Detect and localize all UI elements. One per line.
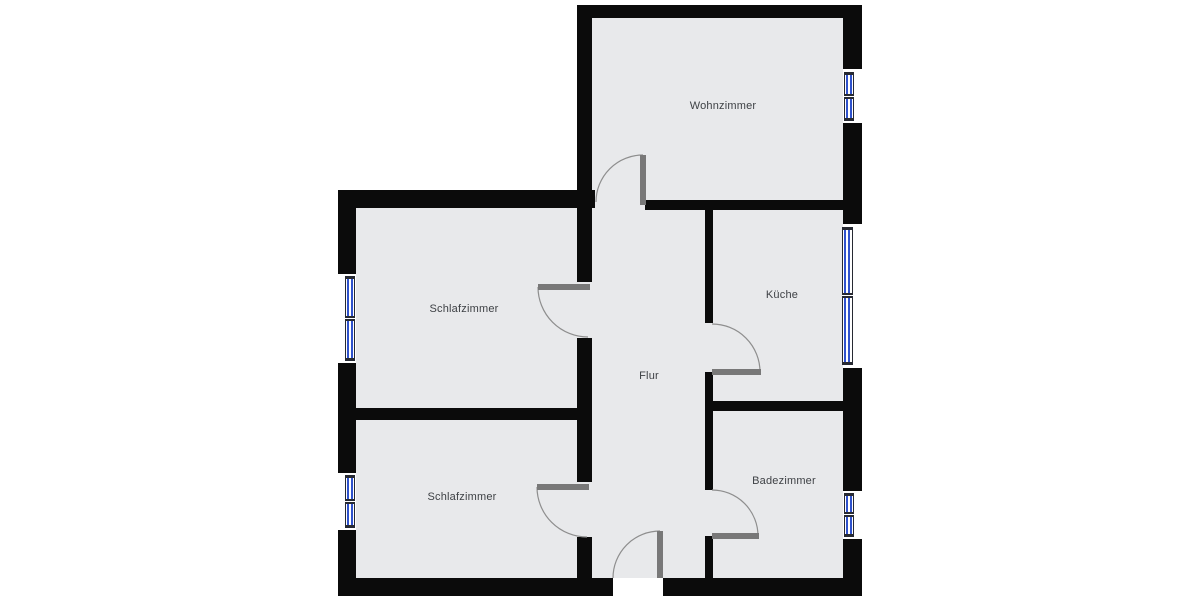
wall-outer-top: [577, 5, 862, 18]
badezimmer-window: [844, 493, 854, 537]
window-sash: [345, 316, 355, 321]
wall-outer-bottom-east: [663, 578, 862, 596]
room-label-schlafzimmer-2: Schlafzimmer: [427, 491, 496, 503]
wall-bedroom-divider: [338, 408, 592, 420]
window-end-cap: [346, 525, 354, 527]
window-end-cap: [845, 534, 853, 536]
kueche-door-panel: [712, 369, 761, 375]
window-end-cap: [843, 362, 852, 364]
schlafzimmer-2-door-panel: [537, 484, 589, 490]
wall-wohnzimmer-kueche-divider: [645, 200, 845, 210]
room-label-schlafzimmer-1: Schlafzimmer: [429, 303, 498, 315]
schlafzimmer-1-window: [345, 276, 355, 361]
wall-flur-bedroom-lower: [577, 537, 592, 578]
wall-left-block-top: [338, 190, 595, 208]
floor-plan: WohnzimmerSchlafzimmerKücheFlurSchlafzim…: [0, 0, 1200, 600]
wall-kueche-bad-divider: [713, 401, 845, 411]
room-label-badezimmer: Badezimmer: [752, 475, 816, 487]
kueche-window: [842, 227, 853, 365]
window-sash: [844, 94, 854, 99]
window-sash: [842, 293, 853, 298]
entrance-door-panel: [657, 531, 663, 578]
wall-flur-bad-lower: [705, 536, 713, 578]
schlafzimmer-2-window: [345, 475, 355, 528]
window-sash: [844, 512, 854, 517]
window-end-cap: [845, 118, 853, 120]
room-label-wohnzimmer: Wohnzimmer: [690, 100, 757, 112]
wall-outer-left: [338, 190, 356, 596]
wall-outer-bottom-west: [338, 578, 613, 596]
apartment-floor-main: [338, 190, 862, 578]
window-end-cap: [845, 73, 853, 75]
window-end-cap: [346, 277, 354, 279]
badezimmer-door-panel: [712, 533, 759, 539]
window-sash: [345, 499, 355, 504]
window-end-cap: [346, 476, 354, 478]
room-label-kueche: Küche: [766, 289, 798, 301]
wall-flur-kueche-upper: [705, 200, 713, 323]
window-end-cap: [843, 228, 852, 230]
room-label-flur: Flur: [639, 370, 659, 382]
wall-flur-kueche-lower: [705, 372, 713, 490]
schlafzimmer-1-door-panel: [538, 284, 590, 290]
window-end-cap: [845, 494, 853, 496]
wall-wohnzimmer-left: [577, 5, 592, 196]
window-end-cap: [346, 358, 354, 360]
wohnzimmer-window: [844, 72, 854, 121]
wall-flur-bedroom-upper: [577, 208, 592, 282]
wohnzimmer-door-panel: [640, 155, 646, 205]
